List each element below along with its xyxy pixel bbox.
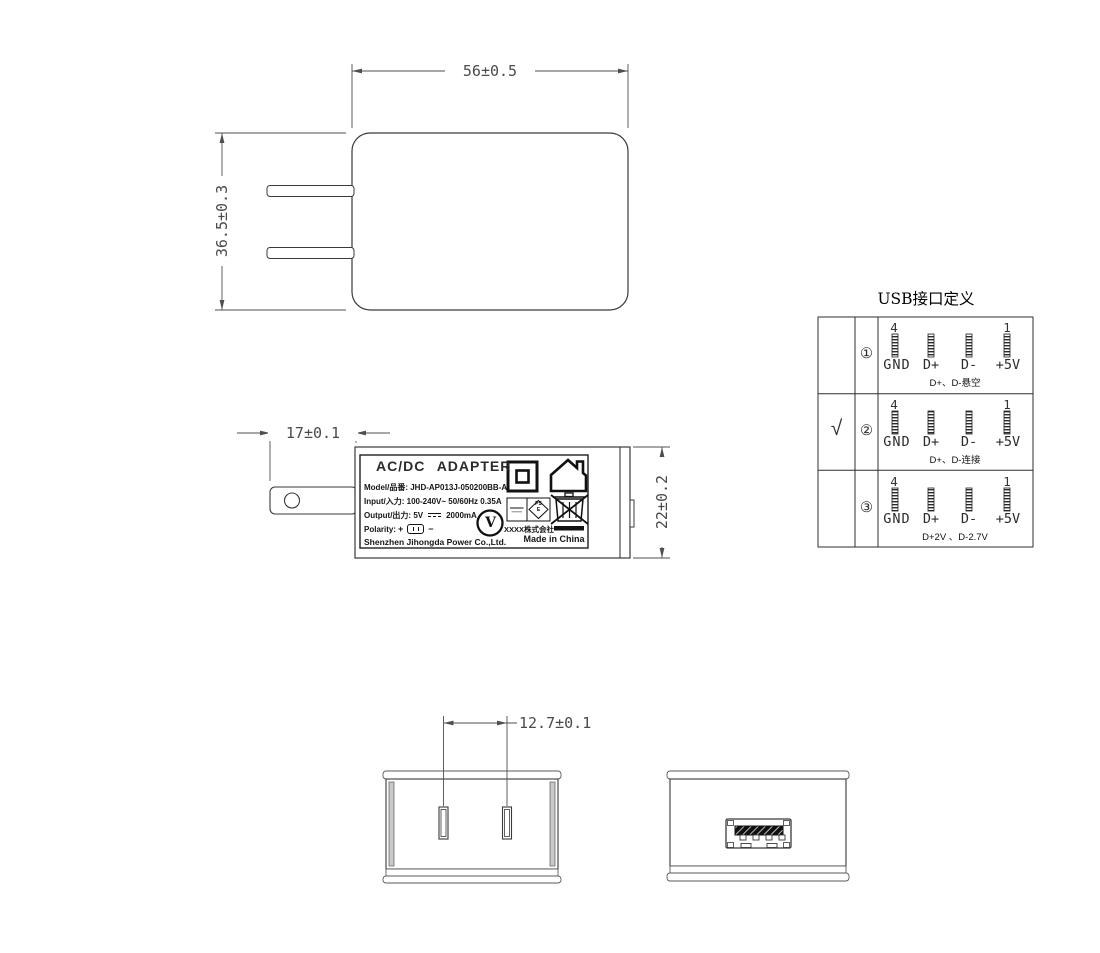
row1-pin4-number: 4 xyxy=(887,320,901,335)
row3-pin1-number: 1 xyxy=(999,474,1015,489)
row2-pin-dminus: D- xyxy=(953,434,985,450)
row2-pin-gnd: GND xyxy=(876,434,918,450)
row2-pin1-number: 1 xyxy=(999,397,1015,412)
row3-pin4-number: 4 xyxy=(887,474,901,489)
efficiency-mark-letter: V xyxy=(478,515,503,531)
row2-pin4-number: 4 xyxy=(887,397,901,412)
label-model-line: Model/品番: JHD-AP013J-050200BB-A xyxy=(364,482,507,493)
row1-pin-dminus: D- xyxy=(953,357,985,373)
label-company: Shenzhen Jihongda Power Co.,Ltd. xyxy=(364,537,506,547)
row3-caption: D+2V 、D-2.7V xyxy=(880,529,1030,543)
side-prong xyxy=(270,487,357,514)
pse-letters-bottom: E xyxy=(530,508,547,513)
usb-tongue xyxy=(735,826,783,835)
usb-connector-polarity-icon xyxy=(407,524,424,534)
adapter-front-outline xyxy=(352,133,628,310)
usb-end-view xyxy=(667,771,849,881)
prong-slot-left xyxy=(439,807,448,839)
top-view xyxy=(267,133,628,310)
row3-number: ③ xyxy=(855,500,878,516)
dim-body-thickness: 22±0.2 xyxy=(654,457,670,547)
row2-caption: D+、D-连接 xyxy=(880,452,1030,466)
row2-pin-5v: +5V xyxy=(988,434,1028,450)
label-output-suffix: 2000mA xyxy=(446,511,477,520)
row3-pin-dplus: D+ xyxy=(916,511,946,527)
plug-end-view xyxy=(383,771,561,883)
usb-port-profile-notch xyxy=(630,500,634,527)
row1-pin1-number: 1 xyxy=(999,320,1015,335)
dim-prong-length: 17±0.1 xyxy=(268,425,358,441)
selected-row-checkmark: √ xyxy=(818,417,855,441)
polarity-plus: + xyxy=(398,524,403,534)
dc-symbol-icon xyxy=(428,513,441,520)
adapter-technical-drawing: 56±0.5 36.5±0.3 17±0.1 22±0.2 12.7±0.1 A… xyxy=(0,0,1100,953)
row2-number: ② xyxy=(855,423,878,439)
dim-body-height: 36.5±0.3 xyxy=(214,176,230,266)
row3-pin-gnd: GND xyxy=(876,511,918,527)
label-polarity-word: Polarity: xyxy=(364,525,396,534)
usb-table-title: USB接口定义 xyxy=(852,287,1000,309)
prong-top xyxy=(267,186,354,197)
label-polarity-line: Polarity: + − xyxy=(364,524,434,534)
dim-pin-pitch: 12.7±0.1 xyxy=(519,715,629,731)
row1-caption: D+、D-悬空 xyxy=(880,375,1030,389)
label-output-line: Output/出力: 5V2000mA xyxy=(364,510,477,521)
row1-pin-gnd: GND xyxy=(876,357,918,373)
row3-pin-dminus: D- xyxy=(953,511,985,527)
row1-pin-5v: +5V xyxy=(988,357,1028,373)
weee-solid-bar xyxy=(554,526,584,531)
dim-36-5-linework xyxy=(215,133,346,310)
usb-a-port-icon xyxy=(726,819,791,848)
prong-bottom xyxy=(267,248,354,259)
label-origin: Made in China xyxy=(512,534,596,544)
label-output-prefix: Output/出力: 5V xyxy=(364,510,423,521)
drawing-linework xyxy=(0,0,1100,953)
row2-pin-dplus: D+ xyxy=(916,434,946,450)
row1-number: ① xyxy=(855,346,878,362)
prong-hole xyxy=(285,493,300,508)
prong-slot-right xyxy=(503,807,512,839)
row1-pin-dplus: D+ xyxy=(916,357,946,373)
polarity-minus: − xyxy=(428,524,433,534)
dim-body-width: 56±0.5 xyxy=(445,63,535,79)
label-input-line: Input/入力: 100-240V~ 50/60Hz 0.35A xyxy=(364,496,502,507)
label-title: AC/DC ADAPTER xyxy=(376,458,511,474)
row3-pin-5v: +5V xyxy=(988,511,1028,527)
